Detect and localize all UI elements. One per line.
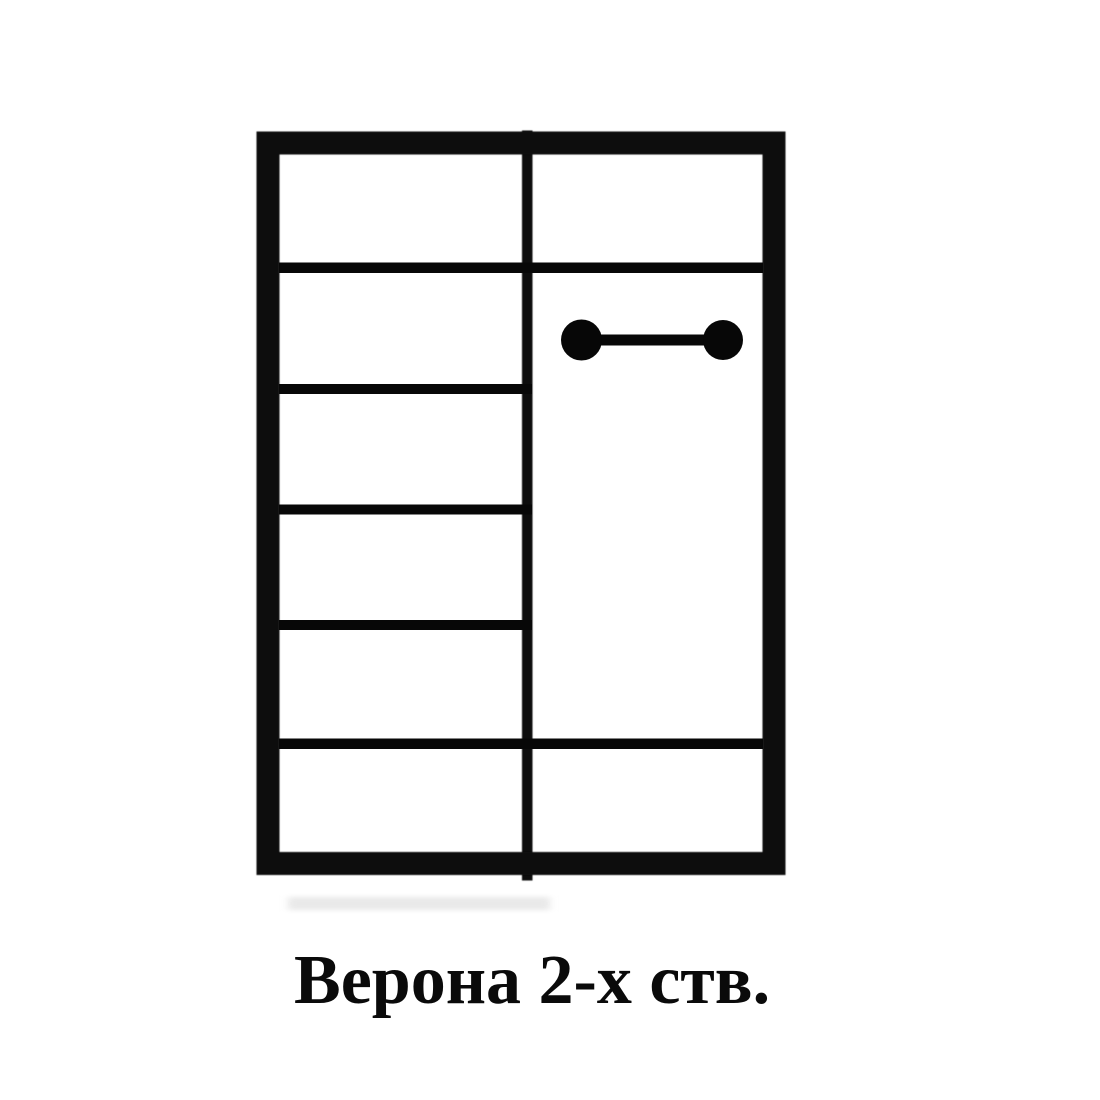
svg-text:Верона 2-х ств.: Верона 2-х ств.: [294, 942, 770, 1019]
